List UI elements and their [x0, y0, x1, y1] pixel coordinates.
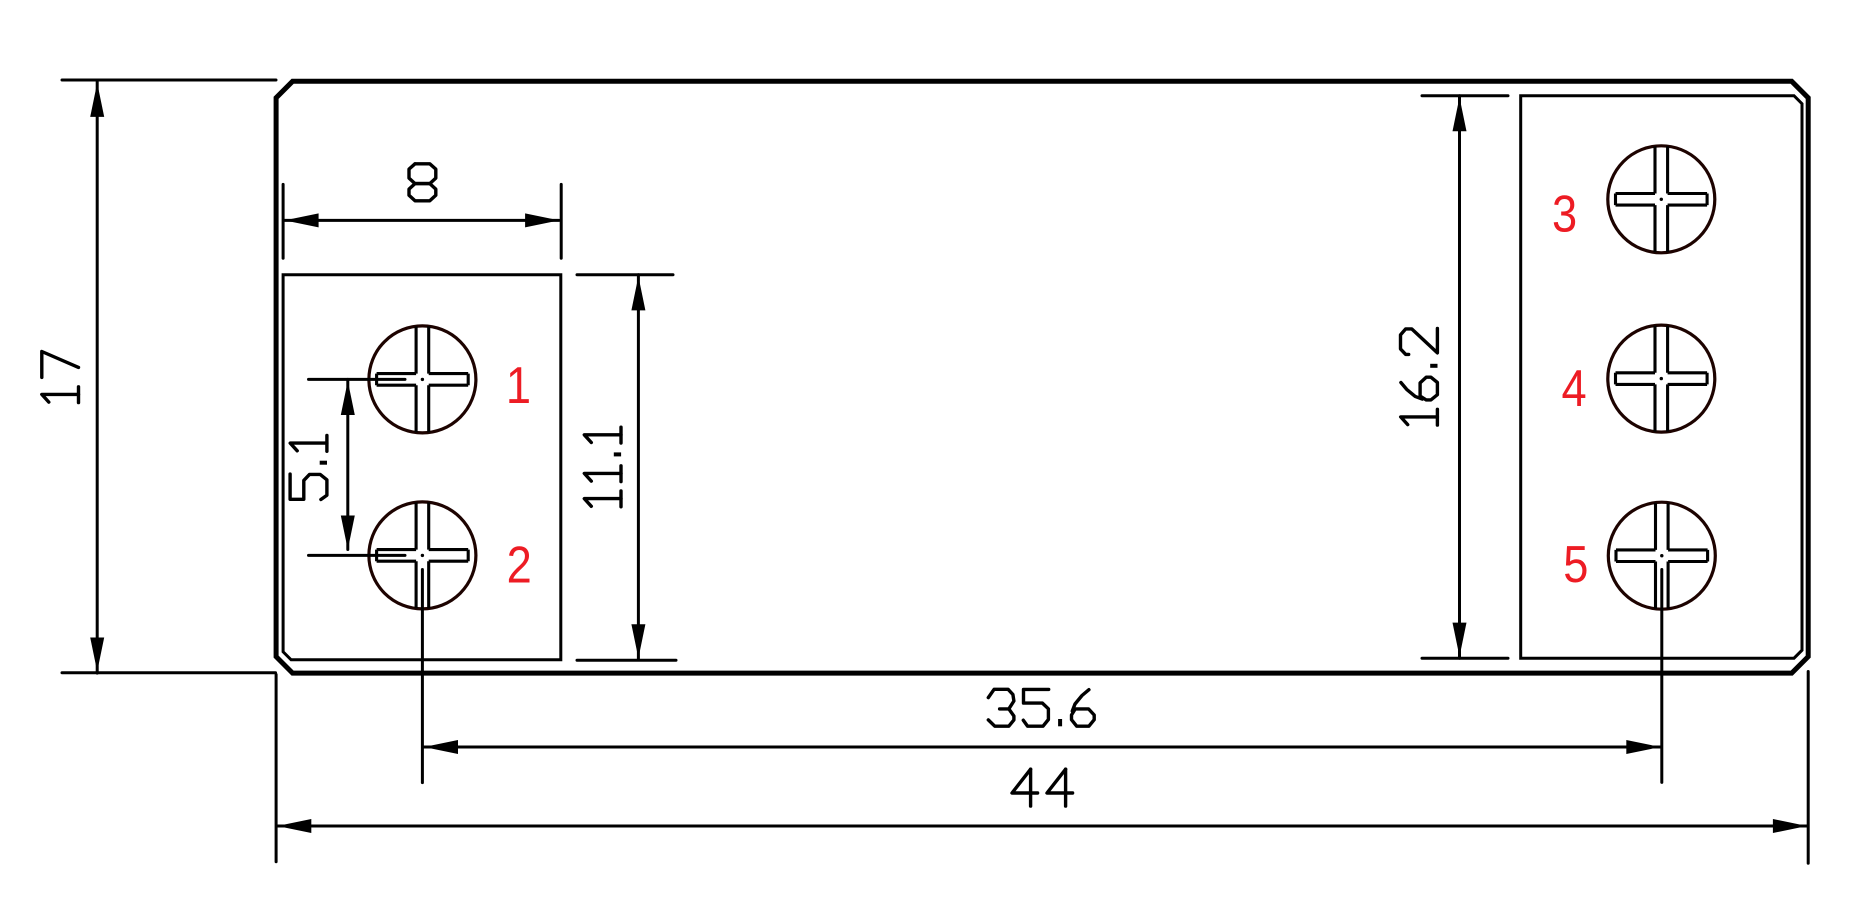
- svg-text:5: 5: [1563, 536, 1588, 594]
- svg-text:4: 4: [1562, 360, 1587, 418]
- svg-text:1: 1: [506, 357, 531, 415]
- svg-text:3: 3: [1552, 186, 1577, 244]
- svg-text:2: 2: [507, 536, 532, 594]
